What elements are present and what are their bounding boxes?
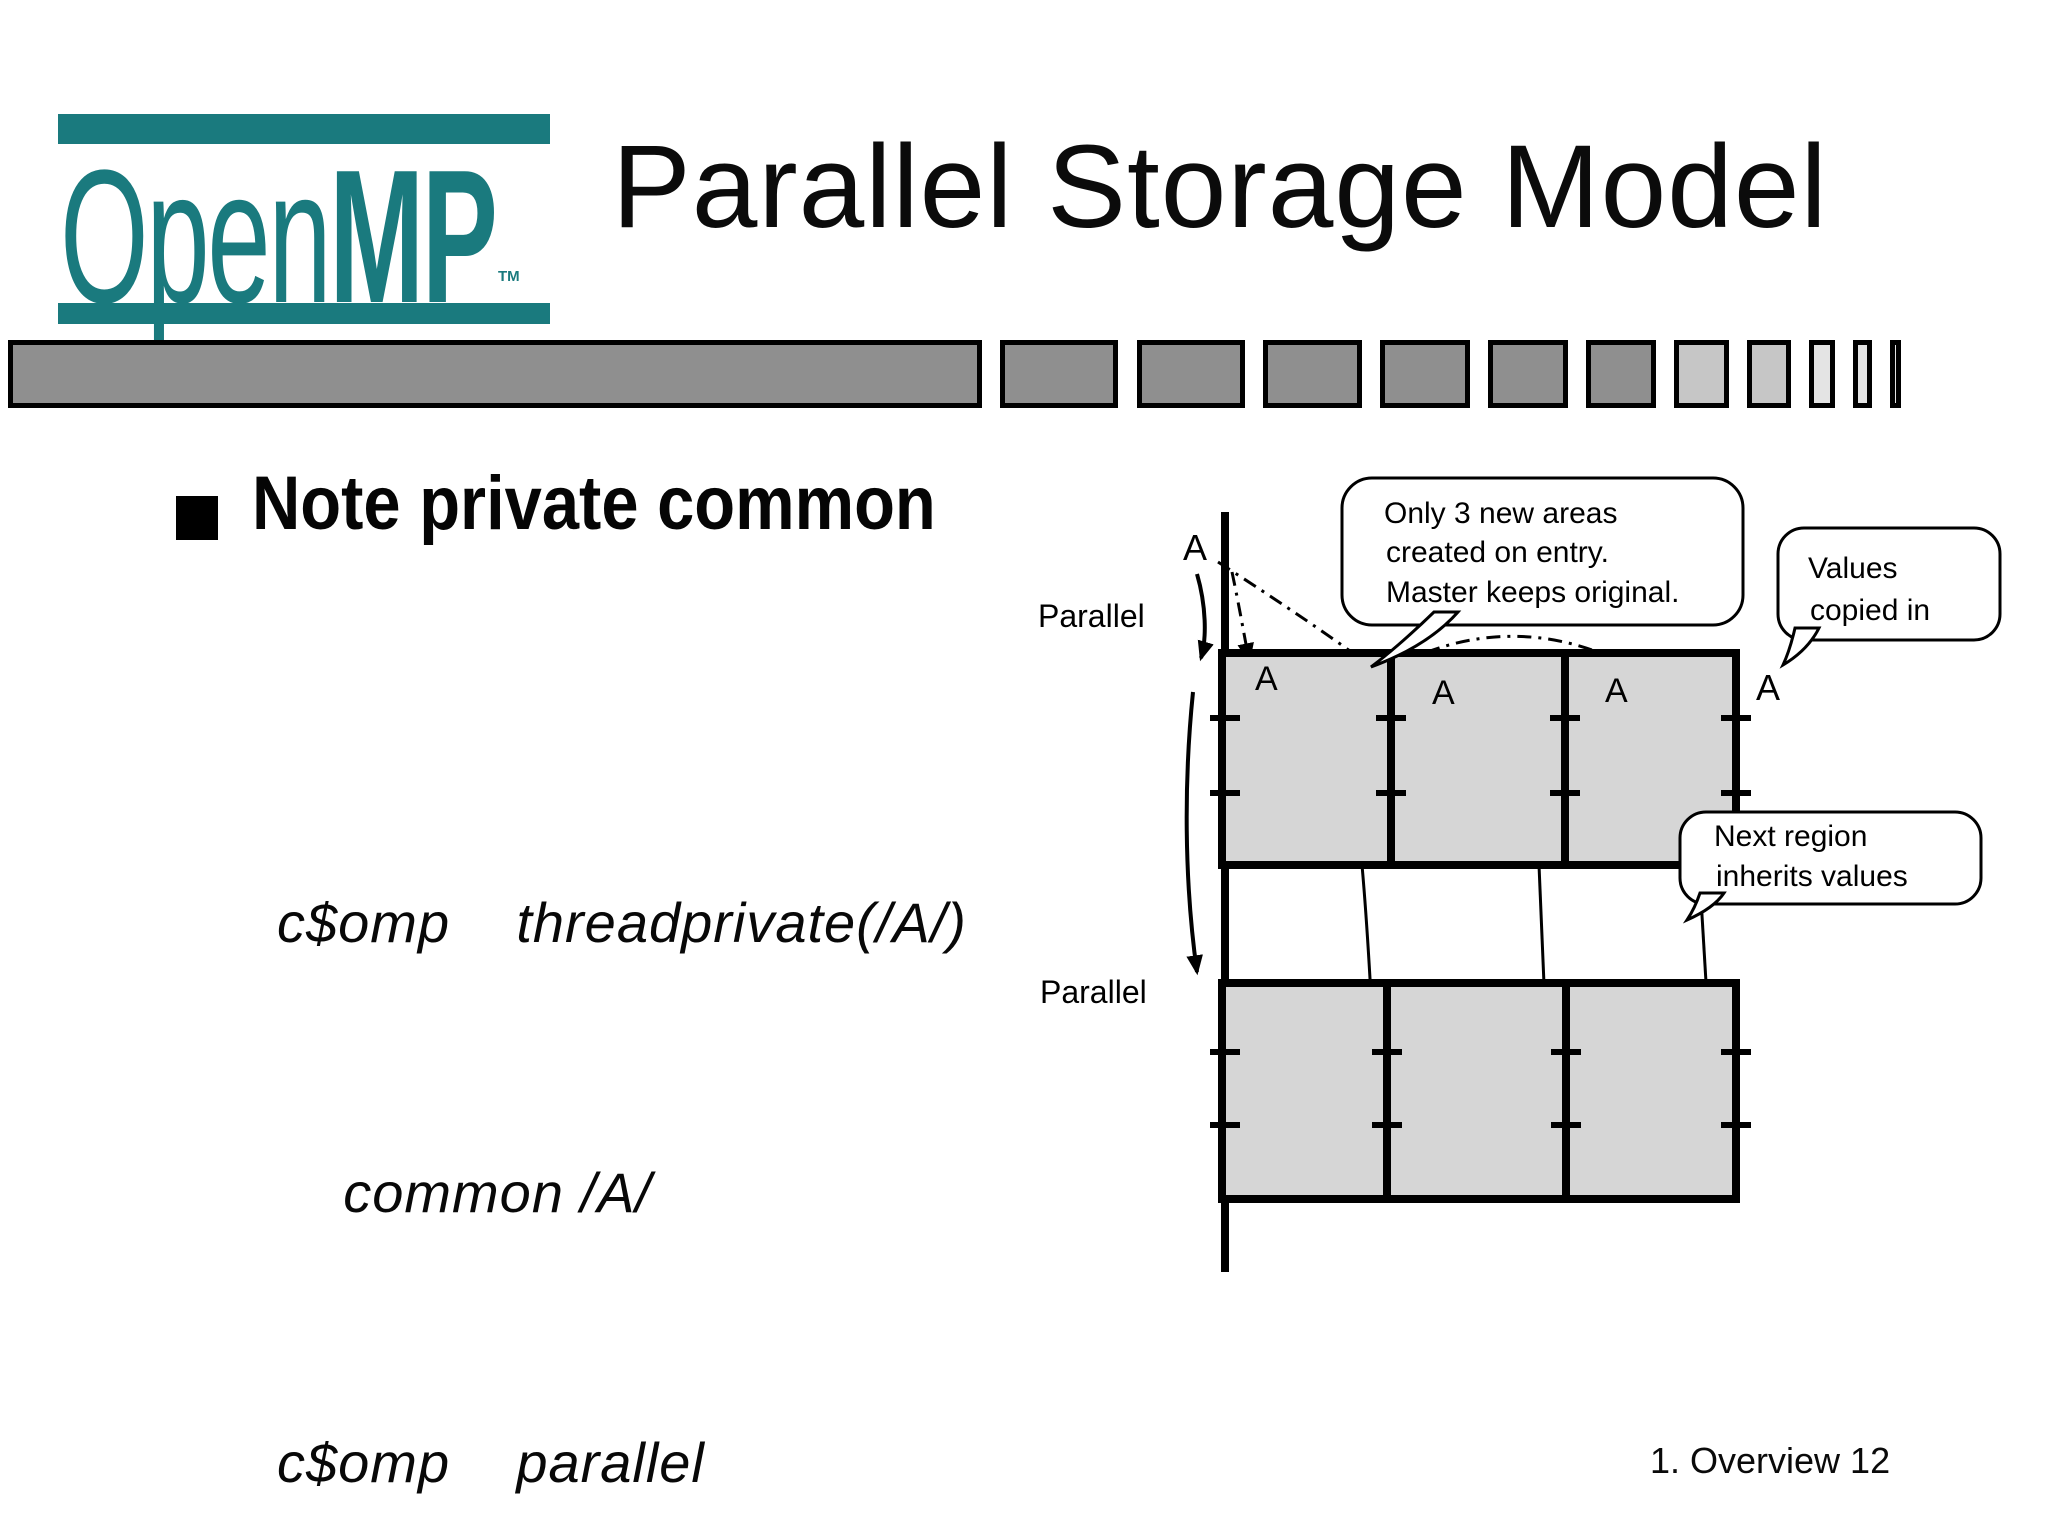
page-number: 1. Overview 12: [1650, 1440, 1890, 1482]
bubble-only3-line2: created on entry.: [1386, 536, 1609, 569]
bubble-values-line2: copied in: [1810, 594, 1930, 627]
bubble-next-line1: Next region: [1714, 820, 1867, 853]
master-a-top-label: A: [1183, 527, 1207, 568]
bubble-only3: Only 3 new areas created on entry. Maste…: [1342, 478, 1743, 667]
cell2-a-label: A: [1432, 674, 1455, 712]
parallel-region-1: A A A: [1210, 653, 1751, 865]
bubble-only3-line1: Only 3 new areas: [1384, 497, 1617, 530]
region2-cells: [1222, 983, 1736, 1199]
cell1-a-label: A: [1255, 660, 1278, 698]
bubble-next-line2: inherits values: [1716, 860, 1908, 893]
cell3-a-label: A: [1605, 672, 1628, 710]
storage-model-diagram: A A A A A Parallel Parallel Only 3 new a…: [0, 0, 2048, 1536]
bubble-values-line1: Values: [1808, 552, 1898, 585]
master-a-right-label: A: [1756, 667, 1780, 708]
parallel-entry-arrows: [1187, 574, 1205, 972]
bubble-next-region: Next region inherits values: [1680, 812, 1981, 920]
region1-cells: [1222, 653, 1736, 865]
parallel-region-2: [1210, 983, 1751, 1199]
bubble-values: Values copied in: [1778, 528, 2000, 665]
parallel-label-1: Parallel: [1038, 598, 1145, 634]
bubble-only3-line3: Master keeps original.: [1386, 576, 1679, 609]
parallel-label-2: Parallel: [1040, 974, 1147, 1010]
